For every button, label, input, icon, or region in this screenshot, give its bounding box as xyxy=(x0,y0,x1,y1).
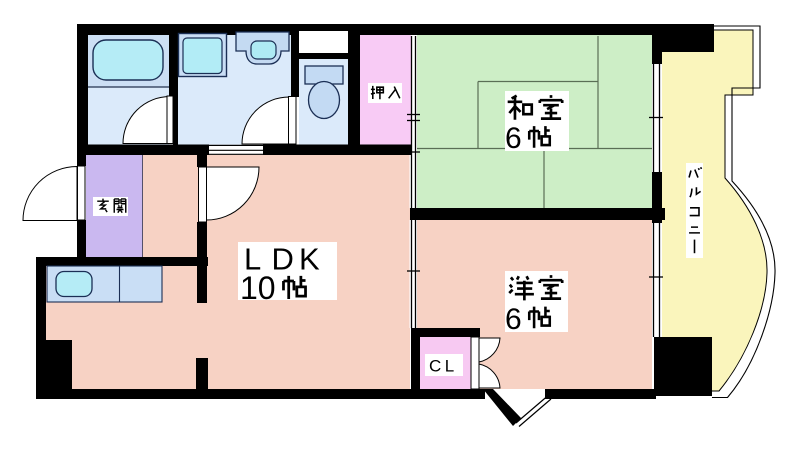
svg-text:6: 6 xyxy=(505,303,522,336)
svg-text:CL: CL xyxy=(429,357,458,376)
svg-text:10: 10 xyxy=(240,270,276,306)
svg-text:6: 6 xyxy=(505,122,522,155)
